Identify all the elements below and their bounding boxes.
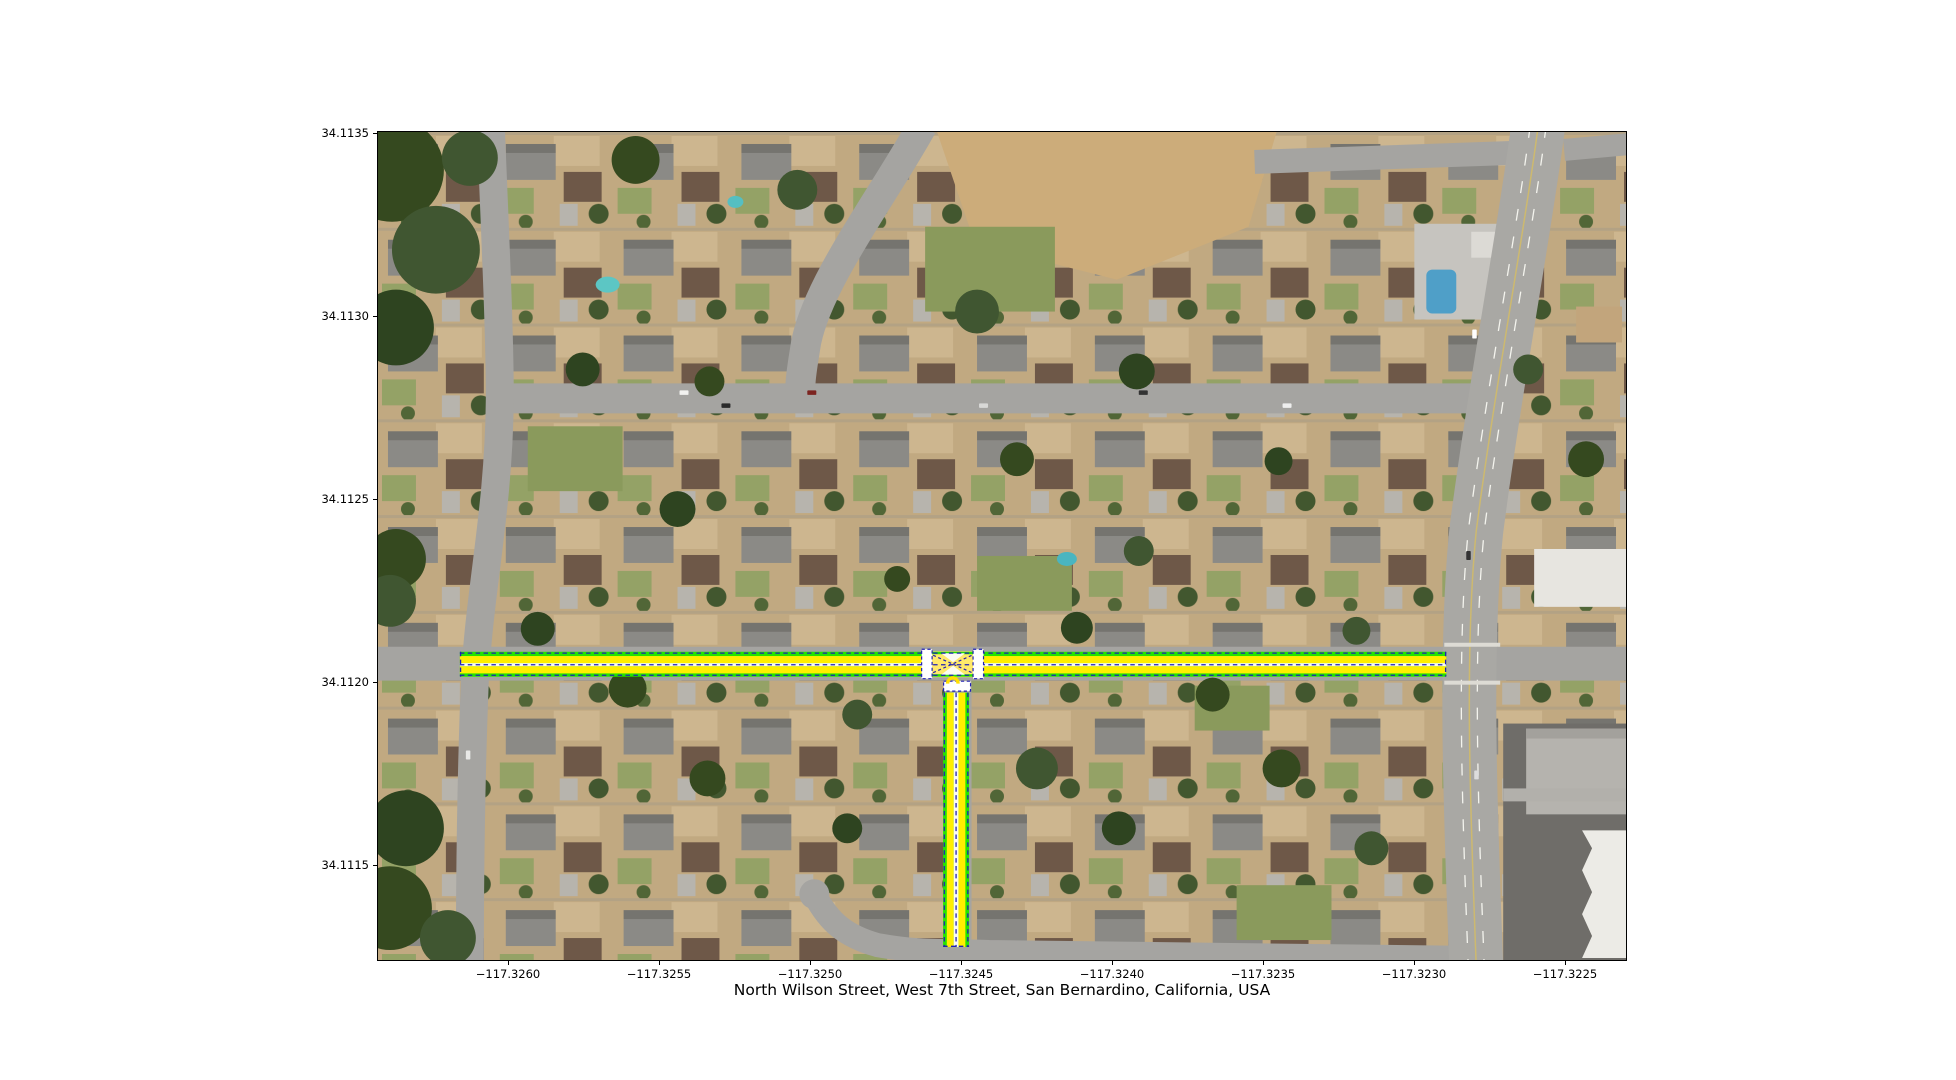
tick-mark — [373, 133, 377, 134]
tick-label: 34.1120 — [321, 676, 369, 688]
plot-area — [377, 131, 1627, 961]
tick-label: −117.3235 — [1231, 968, 1296, 980]
tick-label: −117.3260 — [476, 968, 541, 980]
tick-mark — [373, 316, 377, 317]
residential-blocks — [378, 132, 1626, 960]
tick-mark — [1263, 961, 1264, 965]
tick-mark — [659, 961, 660, 965]
aerial-image — [378, 132, 1626, 960]
tick-mark — [373, 499, 377, 500]
tick-mark — [1414, 961, 1415, 965]
tick-mark — [373, 865, 377, 866]
north-wilson-street-overlay — [943, 693, 969, 947]
tick-mark — [961, 961, 962, 965]
tick-label: 34.1135 — [321, 127, 369, 139]
tick-label: 34.1125 — [321, 493, 369, 505]
tick-label: −117.3250 — [778, 968, 843, 980]
tick-mark — [810, 961, 811, 965]
tick-mark — [508, 961, 509, 965]
figure-title: North Wilson Street, West 7th Street, Sa… — [377, 981, 1627, 999]
tick-mark — [1565, 961, 1566, 965]
tick-label: −117.3230 — [1382, 968, 1447, 980]
tick-label: −117.3255 — [627, 968, 692, 980]
tick-label: −117.3245 — [929, 968, 994, 980]
top-street-road — [1255, 152, 1541, 162]
tick-label: −117.3225 — [1533, 968, 1598, 980]
cul-de-sac — [799, 879, 829, 909]
tick-mark — [373, 682, 377, 683]
tick-label: 34.1130 — [321, 310, 369, 322]
facility-pool — [1426, 270, 1456, 314]
matplotlib-figure: −117.3260−117.3255−117.3250−117.3245−117… — [0, 0, 1956, 1080]
tick-mark — [1112, 961, 1113, 965]
tick-label: −117.3240 — [1080, 968, 1145, 980]
tick-label: 34.1115 — [321, 859, 369, 871]
